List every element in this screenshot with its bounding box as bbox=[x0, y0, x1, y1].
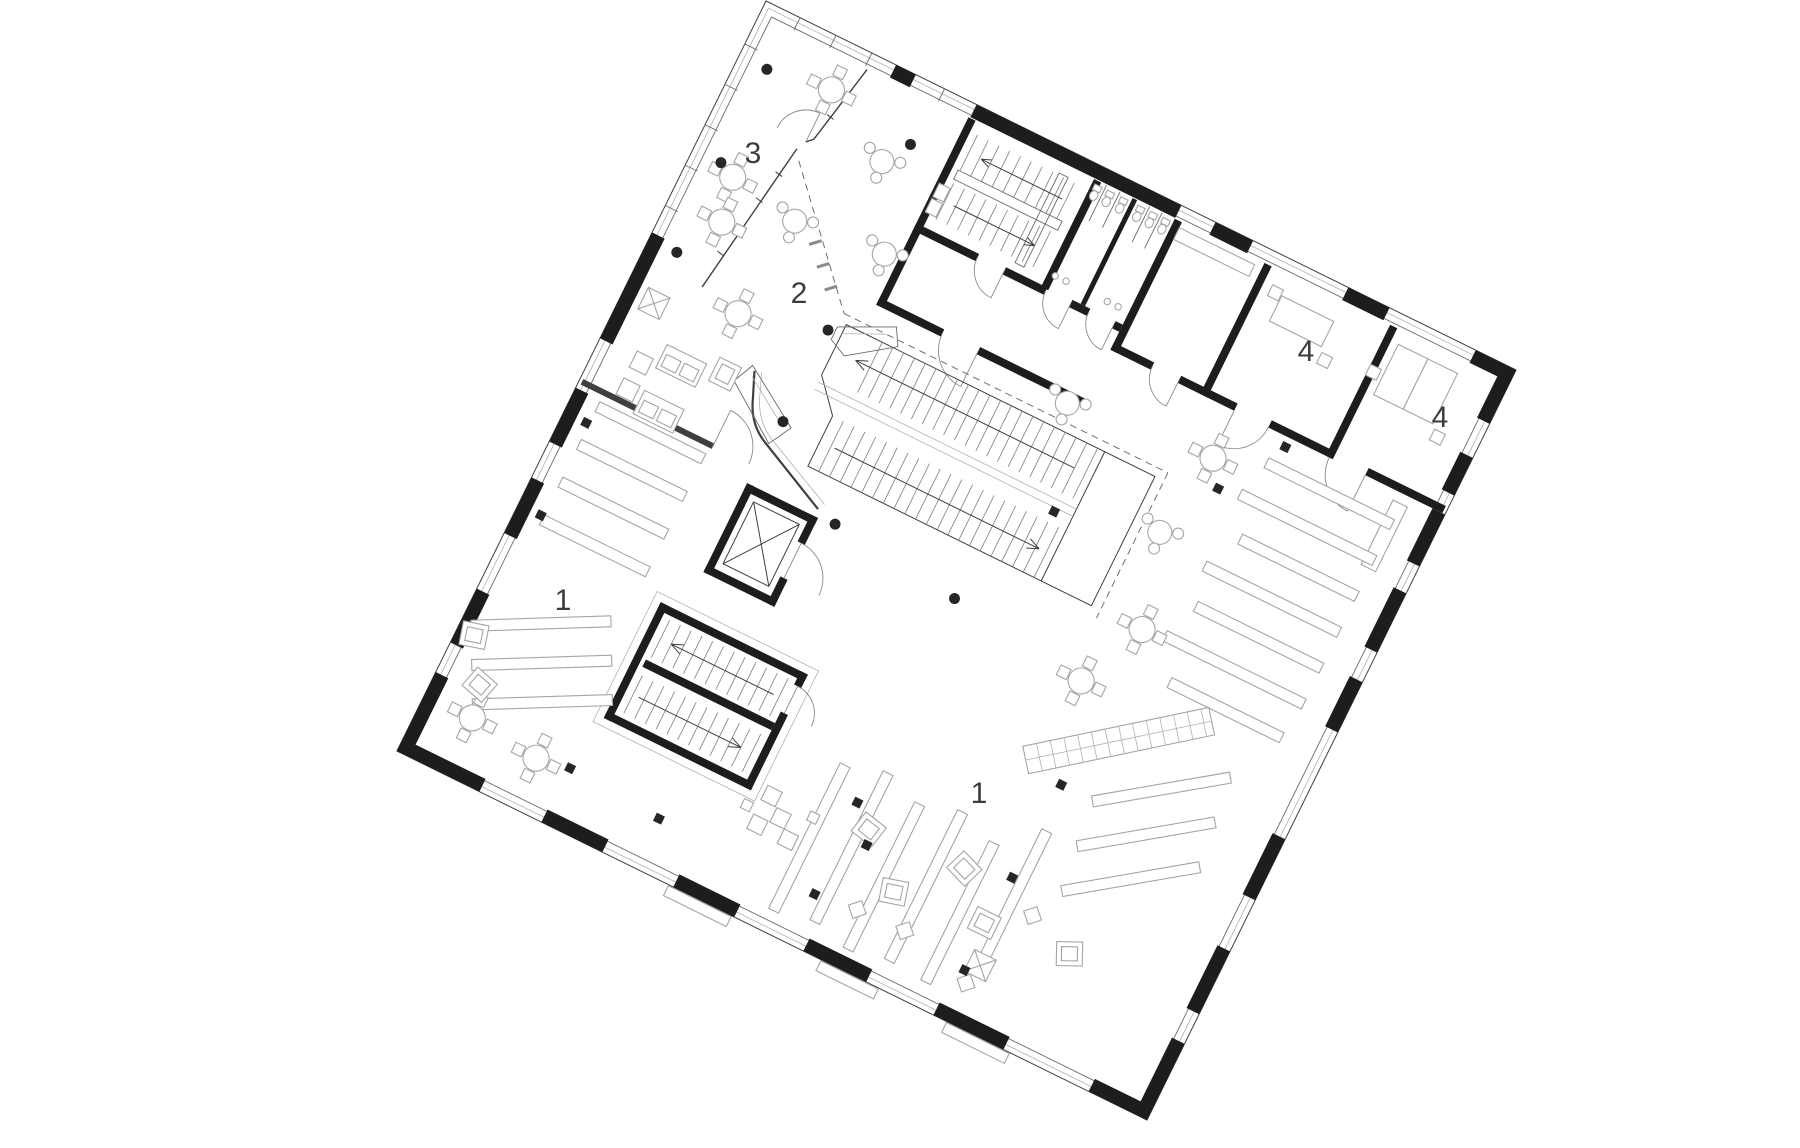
room-label-3: 3 bbox=[745, 137, 762, 170]
floor-plan-page: 3 2 1 1 4 4 bbox=[0, 0, 1800, 1148]
room-label-4-north: 4 bbox=[1298, 335, 1315, 368]
room-label-1-main: 1 bbox=[971, 777, 988, 810]
floor-plan-drawing: 3 2 1 1 4 4 bbox=[0, 0, 1800, 1148]
room-label-4-east: 4 bbox=[1432, 401, 1449, 434]
room-label-2: 2 bbox=[791, 277, 808, 310]
room-label-1-left: 1 bbox=[555, 584, 572, 617]
canvas-background bbox=[0, 0, 1800, 1148]
